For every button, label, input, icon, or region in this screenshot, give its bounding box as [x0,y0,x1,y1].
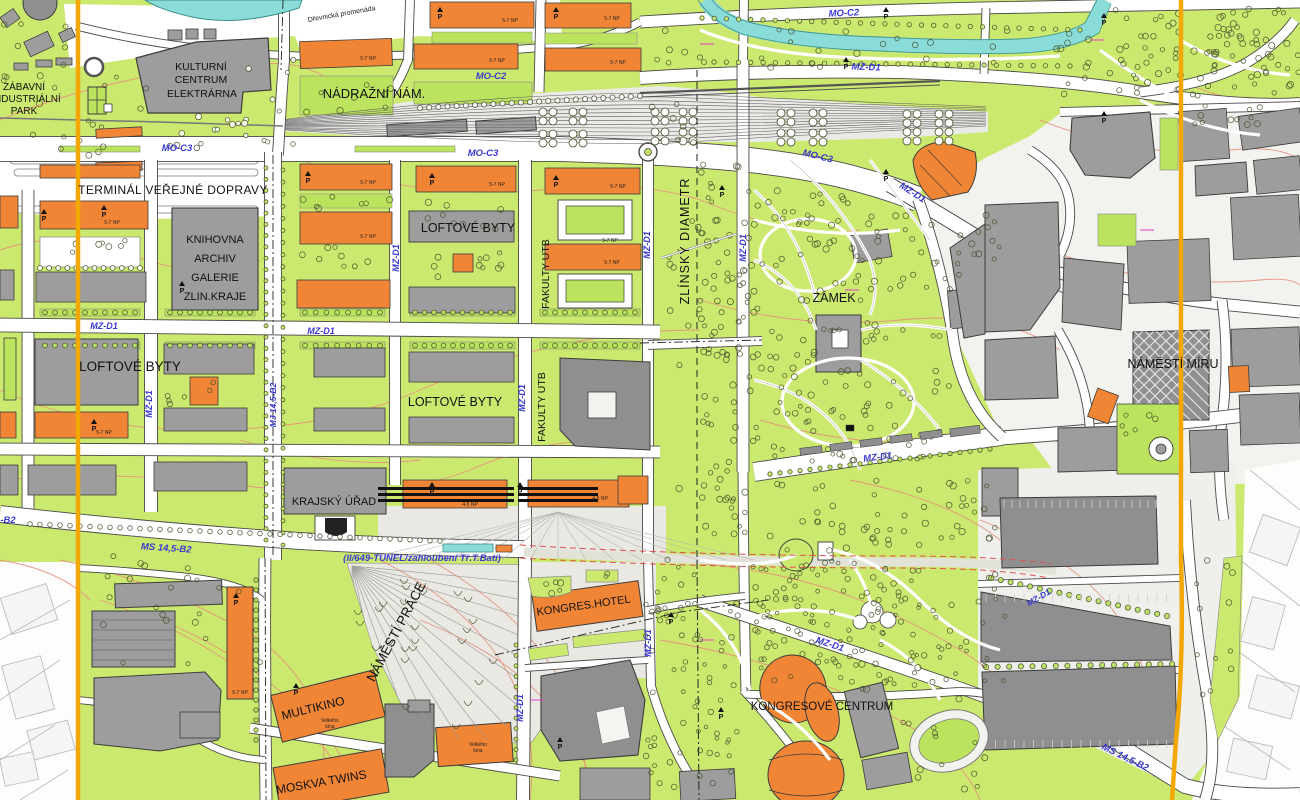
svg-text:MZ-D1: MZ-D1 [517,384,527,412]
svg-text:5-7 NP: 5-7 NP [489,182,505,188]
svg-text:-B2: -B2 [0,515,16,526]
svg-text:P: P [234,600,239,607]
svg-text:P: P [430,180,435,187]
svg-text:5-7 NP: 5-7 NP [104,220,120,226]
svg-text:P: P [92,426,97,433]
svg-text:MZ-D1: MZ-D1 [90,321,118,331]
svg-text:P: P [884,176,889,183]
svg-text:GALERIE: GALERIE [191,272,239,284]
svg-text:P: P [554,14,559,21]
svg-text:P: P [558,744,563,751]
svg-text:ZÁMEK: ZÁMEK [812,290,856,305]
svg-text:LOFTOVÉ BYTY: LOFTOVÉ BYTY [421,220,516,235]
svg-text:PARK: PARK [11,106,38,117]
svg-text:4-5 NP: 4-5 NP [592,496,608,502]
svg-text:4-5 NP: 4-5 NP [462,502,478,508]
svg-text:P: P [1102,118,1107,125]
svg-text:5-7 NP: 5-7 NP [604,260,620,266]
svg-text:5-7 NP: 5-7 NP [602,238,618,244]
svg-text:P: P [102,212,107,219]
svg-text:ZLÍNSKÝ DIAMETR: ZLÍNSKÝ DIAMETR [677,178,692,305]
svg-text:P: P [1102,20,1107,27]
svg-text:ARCHIV: ARCHIV [194,253,236,265]
svg-text:5-7 NP: 5-7 NP [360,234,376,240]
svg-text:CENTRUM: CENTRUM [175,74,228,86]
svg-text:KNIHOVNA: KNIHOVNA [186,234,244,246]
svg-text:5-7 NP: 5-7 NP [604,16,620,22]
svg-text:MZ-D1: MZ-D1 [307,326,335,336]
svg-text:MJ 14,5-B2: MJ 14,5-B2 [268,383,278,428]
svg-text:P: P [180,288,185,295]
svg-text:P: P [669,619,674,626]
svg-text:MZ-D1: MZ-D1 [642,231,652,259]
svg-text:P: P [42,216,47,223]
svg-text:MZ-D1: MZ-D1 [738,234,748,262]
svg-text:NÁDRAŽNÍ NÁM.: NÁDRAŽNÍ NÁM. [323,86,426,101]
svg-text:P: P [306,178,311,185]
svg-text:MZ-D1: MZ-D1 [643,629,653,657]
svg-text:5-7 NP: 5-7 NP [232,690,248,696]
svg-text:MZ-D1: MZ-D1 [391,244,401,272]
svg-text:P: P [294,690,299,697]
svg-text:P: P [719,714,724,721]
svg-text:MZ-D1: MZ-D1 [515,694,525,722]
svg-text:ZLIN.KRAJE: ZLIN.KRAJE [184,291,246,303]
svg-text:ELEKTRÁRNA: ELEKTRÁRNA [167,87,237,100]
svg-text:5-7 NP: 5-7 NP [502,18,518,24]
svg-text:KULTURNÍ: KULTURNÍ [175,60,227,73]
svg-text:ZÁBAVNÍ: ZÁBAVNÍ [3,80,45,93]
svg-text:FAKULTY UTB: FAKULTY UTB [536,372,548,442]
svg-text:P: P [844,64,849,71]
svg-text:INDUSTRIÁLNÍ: INDUSTRIÁLNÍ [0,92,61,105]
svg-text:5-7 NP: 5-7 NP [96,430,112,436]
svg-text:MO-C2: MO-C2 [828,7,860,20]
svg-text:(II/649-TUNEL/zahloubení Tř.T.: (II/649-TUNEL/zahloubení Tř.T.Batí) [343,553,501,564]
svg-text:MO-C2: MO-C2 [476,71,507,82]
svg-text:kina: kina [325,724,334,730]
svg-text:MZ-D1: MZ-D1 [851,61,880,73]
svg-text:FAKULTY UTB: FAKULTY UTB [540,239,552,309]
svg-text:MO-C3: MO-C3 [468,148,499,159]
svg-text:MZ-D1: MZ-D1 [144,390,154,418]
svg-text:KONGRESOVÉ CENTRUM: KONGRESOVÉ CENTRUM [751,700,894,713]
svg-text:NÁMĚSTÍ MÍRU: NÁMĚSTÍ MÍRU [1128,356,1219,371]
svg-text:kina: kina [473,748,482,754]
svg-text:LOFTOVÉ BYTY: LOFTOVÉ BYTY [408,394,503,409]
svg-text:5-7 NP: 5-7 NP [610,60,626,66]
svg-text:LOFTOVÉ BYTY: LOFTOVÉ BYTY [79,359,181,374]
svg-text:5-7 NP: 5-7 NP [489,58,505,64]
svg-text:P: P [430,489,435,496]
svg-text:P: P [884,14,889,21]
svg-text:5-7 NP: 5-7 NP [610,184,626,190]
svg-text:TERMINÁL VEŘEJNÉ DOPRAVY: TERMINÁL VEŘEJNÉ DOPRAVY [78,182,268,197]
svg-text:P: P [554,182,559,189]
svg-text:P: P [518,489,523,496]
svg-text:KRAJSKÝ ÚŘAD: KRAJSKÝ ÚŘAD [292,495,376,508]
svg-text:5-7 NP: 5-7 NP [360,56,376,62]
svg-text:MO-C3: MO-C3 [162,143,193,154]
svg-text:P: P [720,192,725,199]
svg-text:P: P [438,14,443,21]
svg-text:5-7 NP: 5-7 NP [360,180,376,186]
